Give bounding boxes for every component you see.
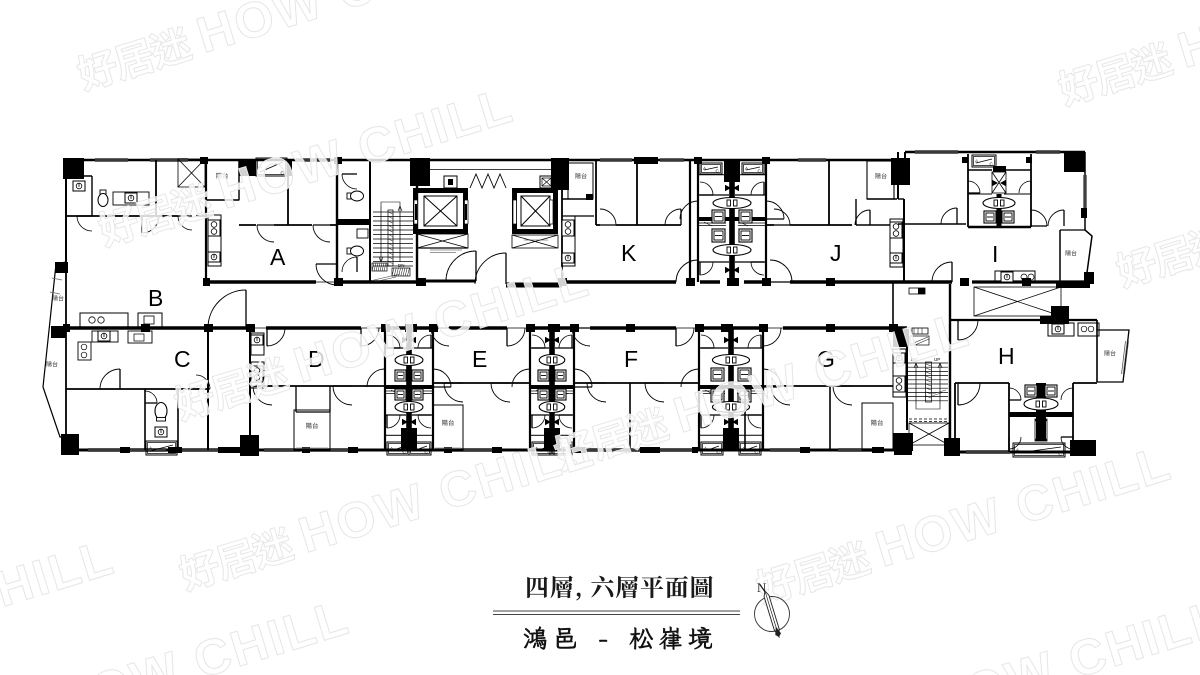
svg-text:DN: DN bbox=[398, 263, 405, 268]
svg-text:C: C bbox=[174, 346, 191, 372]
svg-text:H: H bbox=[998, 343, 1015, 369]
svg-text:A: A bbox=[270, 244, 286, 270]
svg-text:A: A bbox=[704, 446, 707, 451]
svg-text:I: I bbox=[992, 241, 998, 267]
svg-text:A: A bbox=[149, 446, 152, 451]
svg-text:A: A bbox=[390, 446, 393, 451]
svg-text:B: B bbox=[148, 285, 163, 311]
svg-text:A: A bbox=[745, 166, 748, 171]
svg-text:A: A bbox=[1016, 448, 1019, 453]
svg-text:E: E bbox=[472, 346, 487, 372]
svg-text:N: N bbox=[757, 580, 767, 595]
svg-text:A: A bbox=[703, 166, 706, 171]
svg-text:F: F bbox=[624, 346, 638, 372]
svg-text:A: A bbox=[975, 159, 978, 164]
svg-text:J: J bbox=[830, 240, 842, 266]
svg-text:K: K bbox=[621, 240, 637, 266]
